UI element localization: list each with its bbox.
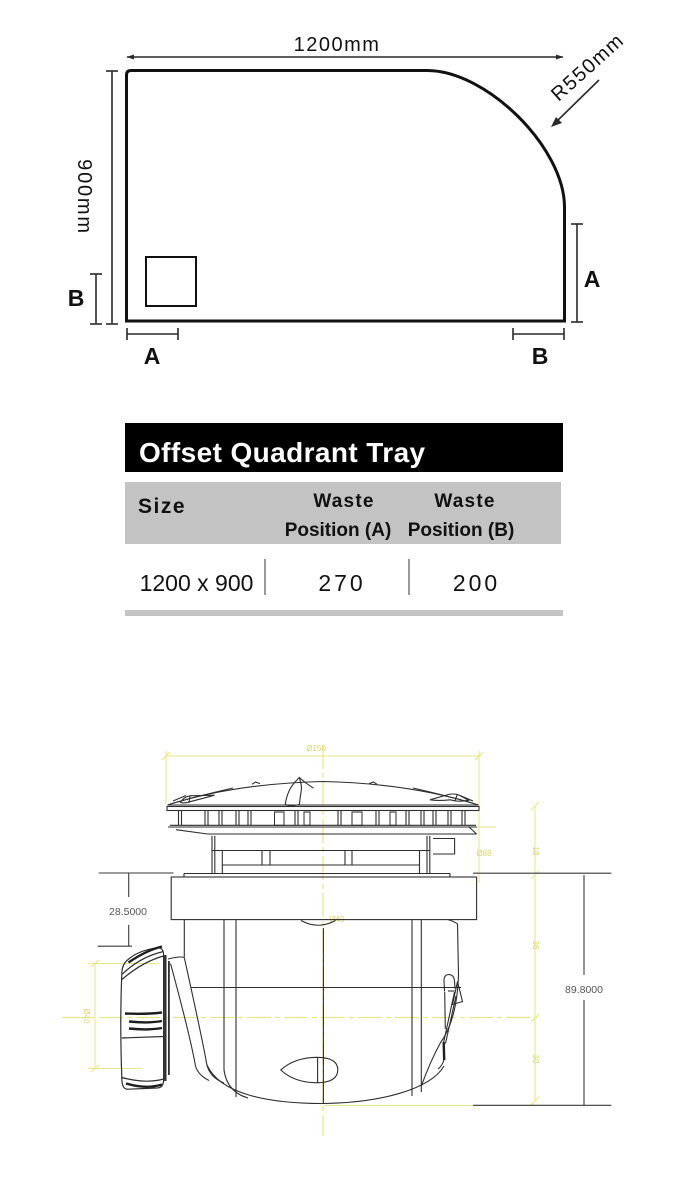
svg-text:Ø150: Ø150 — [306, 744, 326, 753]
svg-text:Waste: Waste — [434, 491, 495, 512]
svg-text:B: B — [532, 343, 549, 369]
svg-text:900mm: 900mm — [73, 159, 95, 235]
svg-text:A: A — [584, 266, 601, 292]
svg-text:18: 18 — [531, 847, 540, 856]
svg-text:B: B — [68, 285, 85, 311]
svg-text:Ø88: Ø88 — [476, 849, 492, 858]
svg-text:30: 30 — [531, 1055, 540, 1064]
svg-text:1200 x 900: 1200 x 900 — [140, 570, 254, 596]
svg-text:89.8000: 89.8000 — [565, 984, 603, 996]
svg-text:270: 270 — [318, 570, 365, 596]
svg-text:1200mm: 1200mm — [294, 34, 381, 56]
svg-text:A: A — [144, 343, 161, 369]
svg-text:28.5000: 28.5000 — [109, 906, 147, 918]
svg-text:Offset Quadrant Tray: Offset Quadrant Tray — [139, 437, 426, 468]
svg-text:Ø40: Ø40 — [82, 1008, 91, 1024]
svg-text:200: 200 — [453, 570, 500, 596]
svg-text:Position (A): Position (A) — [285, 520, 392, 541]
svg-text:Position (B): Position (B) — [408, 520, 515, 541]
svg-text:Size: Size — [138, 495, 186, 518]
svg-text:Waste: Waste — [313, 491, 374, 512]
svg-text:36: 36 — [531, 941, 540, 950]
